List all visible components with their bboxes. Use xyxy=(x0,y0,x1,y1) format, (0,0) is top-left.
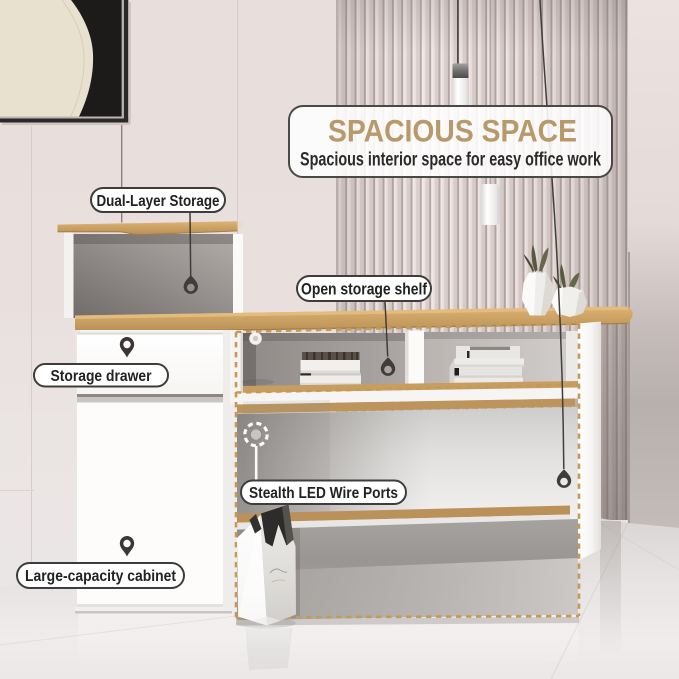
svg-text:Large-capacity cabinet: Large-capacity cabinet xyxy=(25,568,177,585)
svg-text:Spacious interior space for ea: Spacious interior space for easy office … xyxy=(300,150,601,171)
svg-text:Open storage shelf: Open storage shelf xyxy=(301,281,427,299)
svg-text:SPACIOUS SPACE: SPACIOUS SPACE xyxy=(328,114,577,149)
svg-text:Storage drawer: Storage drawer xyxy=(51,368,152,385)
svg-text:Stealth LED Wire Ports: Stealth LED Wire Ports xyxy=(249,485,398,502)
svg-text:Dual-Layer Storage: Dual-Layer Storage xyxy=(97,193,220,210)
